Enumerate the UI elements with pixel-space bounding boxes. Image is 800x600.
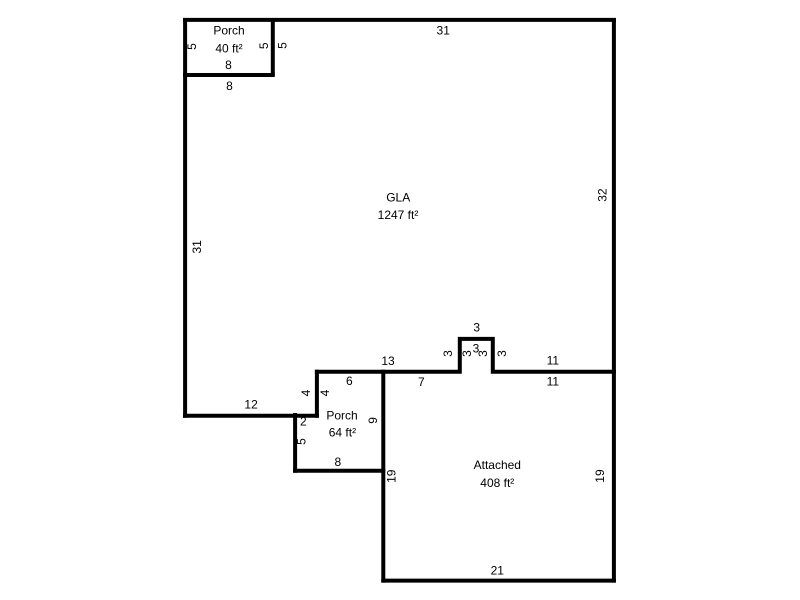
svg-text:32: 32 (595, 188, 609, 202)
svg-text:5: 5 (185, 43, 199, 50)
svg-text:3: 3 (460, 350, 474, 357)
svg-text:21: 21 (491, 564, 505, 578)
svg-text:8: 8 (225, 58, 232, 72)
svg-text:12: 12 (244, 397, 258, 411)
svg-text:13: 13 (381, 354, 395, 368)
svg-text:19: 19 (593, 469, 607, 483)
svg-text:5: 5 (276, 42, 290, 49)
svg-text:64 ft²: 64 ft² (329, 425, 356, 439)
svg-text:8: 8 (226, 79, 233, 93)
svg-text:31: 31 (190, 240, 204, 254)
svg-text:Attached: Attached (474, 458, 521, 472)
svg-text:1247 ft²: 1247 ft² (378, 208, 419, 222)
svg-text:3: 3 (441, 350, 455, 357)
svg-text:9: 9 (366, 417, 380, 424)
svg-text:6: 6 (346, 374, 353, 388)
svg-text:5: 5 (295, 438, 309, 445)
svg-text:31: 31 (437, 24, 451, 38)
svg-text:40 ft²: 40 ft² (215, 42, 242, 56)
svg-text:8: 8 (334, 455, 341, 469)
svg-text:3: 3 (476, 350, 490, 357)
svg-text:Porch: Porch (326, 408, 357, 422)
svg-text:3: 3 (495, 350, 509, 357)
svg-text:19: 19 (384, 469, 398, 483)
svg-text:7: 7 (418, 375, 425, 389)
svg-text:4: 4 (299, 389, 313, 396)
svg-text:Porch: Porch (213, 24, 244, 38)
svg-text:11: 11 (547, 374, 560, 388)
svg-text:GLA: GLA (386, 191, 410, 205)
svg-text:3: 3 (473, 320, 480, 334)
svg-text:11: 11 (547, 354, 560, 368)
svg-text:4: 4 (318, 389, 332, 396)
svg-text:5: 5 (257, 42, 271, 49)
svg-text:408 ft²: 408 ft² (480, 476, 514, 490)
svg-text:2: 2 (300, 414, 307, 428)
